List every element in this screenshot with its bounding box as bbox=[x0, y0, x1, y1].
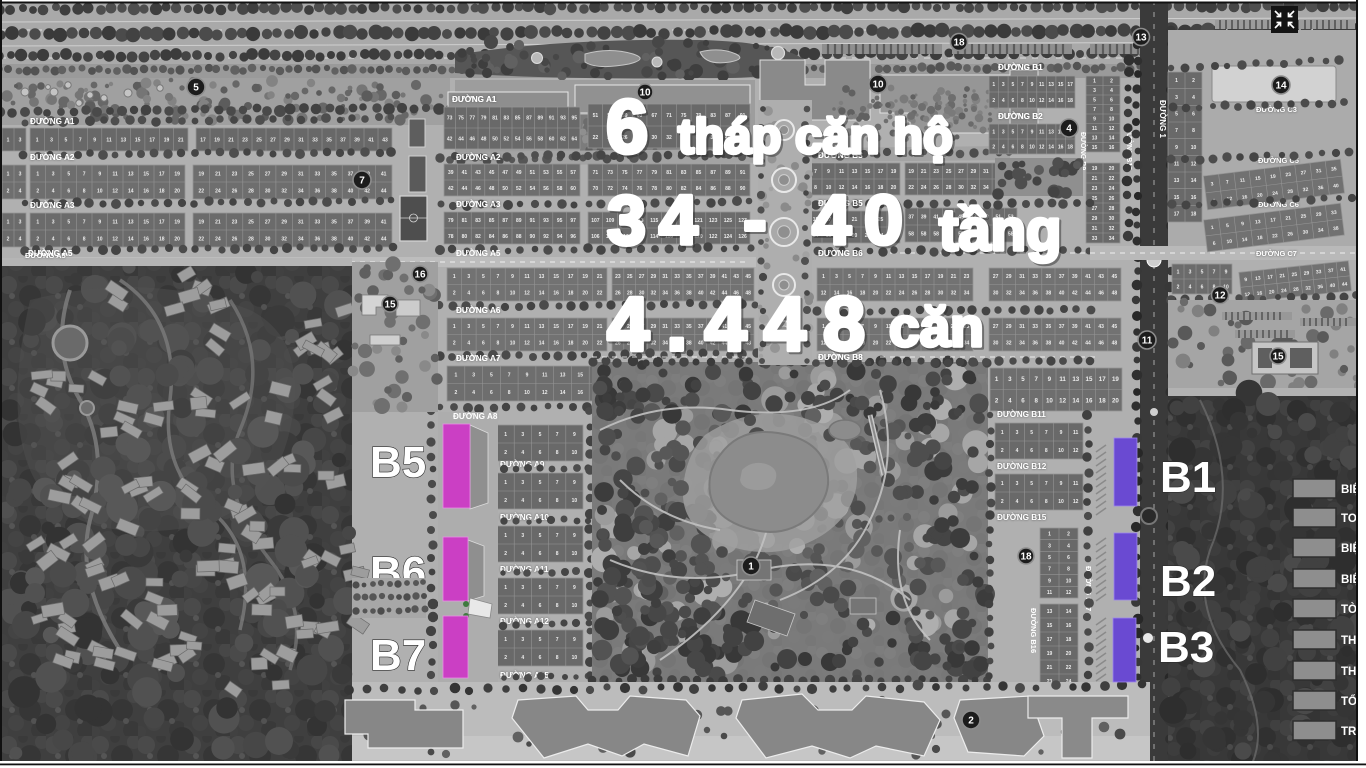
svg-text:30: 30 bbox=[993, 341, 999, 347]
svg-text:2: 2 bbox=[504, 551, 507, 557]
svg-text:10: 10 bbox=[872, 79, 884, 90]
svg-text:17: 17 bbox=[149, 137, 155, 143]
svg-text:20: 20 bbox=[582, 291, 588, 297]
svg-text:17: 17 bbox=[1174, 212, 1180, 218]
svg-text:91: 91 bbox=[740, 170, 746, 176]
svg-text:34: 34 bbox=[1019, 341, 1025, 347]
svg-text:14: 14 bbox=[128, 188, 134, 194]
svg-text:83: 83 bbox=[504, 115, 510, 121]
svg-text:41: 41 bbox=[1085, 274, 1091, 280]
svg-text:28: 28 bbox=[1109, 206, 1115, 212]
svg-text:7: 7 bbox=[83, 171, 86, 177]
svg-text:9: 9 bbox=[93, 137, 96, 143]
svg-text:9: 9 bbox=[511, 324, 514, 330]
svg-text:28: 28 bbox=[946, 185, 952, 191]
svg-text:33: 33 bbox=[674, 274, 680, 280]
svg-text:46: 46 bbox=[470, 136, 476, 142]
svg-text:20: 20 bbox=[1112, 398, 1119, 405]
svg-text:1: 1 bbox=[7, 137, 10, 143]
svg-text:19: 19 bbox=[1270, 174, 1276, 181]
svg-text:3: 3 bbox=[19, 219, 22, 225]
svg-text:43: 43 bbox=[382, 137, 388, 143]
svg-text:10: 10 bbox=[572, 551, 578, 557]
svg-text:107: 107 bbox=[591, 218, 600, 224]
svg-text:7: 7 bbox=[556, 432, 559, 438]
svg-text:11: 11 bbox=[1174, 162, 1180, 168]
svg-text:15: 15 bbox=[1058, 82, 1064, 88]
svg-text:ĐƯỜNG A8: ĐƯỜNG A8 bbox=[453, 410, 498, 421]
svg-text:16: 16 bbox=[578, 390, 584, 396]
svg-text:7: 7 bbox=[83, 219, 86, 225]
svg-text:29: 29 bbox=[1092, 216, 1098, 222]
svg-text:7: 7 bbox=[556, 585, 559, 591]
svg-text:2: 2 bbox=[504, 655, 507, 661]
svg-text:20: 20 bbox=[174, 236, 180, 242]
svg-text:34: 34 bbox=[1318, 227, 1324, 234]
svg-text:75: 75 bbox=[622, 170, 628, 176]
svg-text:22: 22 bbox=[1109, 176, 1115, 182]
svg-text:17: 17 bbox=[925, 274, 931, 280]
svg-text:9: 9 bbox=[1031, 82, 1034, 88]
svg-text:41: 41 bbox=[462, 170, 468, 176]
svg-text:7: 7 bbox=[556, 637, 559, 643]
svg-text:11: 11 bbox=[542, 373, 548, 379]
svg-text:8: 8 bbox=[556, 450, 559, 456]
svg-text:4: 4 bbox=[1016, 448, 1019, 454]
svg-text:93: 93 bbox=[543, 218, 549, 224]
svg-text:31: 31 bbox=[298, 137, 304, 143]
svg-text:13: 13 bbox=[899, 274, 905, 280]
svg-text:1: 1 bbox=[1048, 532, 1051, 538]
svg-text:11: 11 bbox=[524, 324, 530, 330]
svg-text:77: 77 bbox=[470, 115, 476, 121]
svg-text:2: 2 bbox=[453, 291, 456, 297]
svg-text:25: 25 bbox=[248, 171, 254, 177]
svg-text:37: 37 bbox=[1059, 274, 1065, 280]
svg-text:5: 5 bbox=[539, 533, 542, 539]
svg-text:1: 1 bbox=[822, 274, 825, 280]
svg-text:3: 3 bbox=[1002, 82, 1005, 88]
svg-text:37: 37 bbox=[1328, 268, 1334, 275]
svg-text:9: 9 bbox=[1060, 430, 1063, 436]
svg-text:58: 58 bbox=[921, 231, 927, 237]
svg-text:28: 28 bbox=[1287, 189, 1293, 196]
svg-text:21: 21 bbox=[921, 169, 927, 175]
svg-text:36: 36 bbox=[1032, 291, 1038, 297]
svg-text:44: 44 bbox=[381, 236, 387, 242]
svg-text:10: 10 bbox=[572, 655, 578, 661]
svg-text:5: 5 bbox=[1012, 129, 1015, 135]
svg-text:4: 4 bbox=[1110, 88, 1113, 94]
svg-text:2: 2 bbox=[453, 341, 456, 347]
svg-text:21: 21 bbox=[951, 274, 957, 280]
svg-text:20: 20 bbox=[1257, 192, 1263, 199]
svg-text:33: 33 bbox=[1331, 210, 1337, 217]
svg-text:41: 41 bbox=[368, 137, 374, 143]
svg-text:1: 1 bbox=[7, 219, 10, 225]
svg-text:86: 86 bbox=[502, 234, 508, 240]
svg-text:ĐƯỜNG A1: ĐƯỜNG A1 bbox=[30, 115, 75, 126]
svg-text:54: 54 bbox=[530, 186, 536, 192]
svg-text:31: 31 bbox=[983, 169, 989, 175]
svg-text:10: 10 bbox=[572, 450, 578, 456]
svg-text:3: 3 bbox=[1002, 129, 1005, 135]
svg-text:6: 6 bbox=[539, 450, 542, 456]
svg-text:15: 15 bbox=[1255, 175, 1261, 182]
svg-text:32: 32 bbox=[666, 135, 672, 141]
svg-text:4: 4 bbox=[1002, 144, 1005, 150]
svg-text:4: 4 bbox=[52, 236, 55, 242]
svg-text:25: 25 bbox=[627, 274, 633, 280]
svg-text:ĐƯỜNG A2: ĐƯỜNG A2 bbox=[30, 151, 75, 162]
svg-text:44: 44 bbox=[1085, 291, 1091, 297]
svg-text:29: 29 bbox=[284, 137, 290, 143]
svg-text:48: 48 bbox=[481, 136, 487, 142]
svg-text:4: 4 bbox=[52, 188, 55, 194]
svg-text:1: 1 bbox=[1177, 269, 1180, 275]
svg-text:18: 18 bbox=[1020, 551, 1032, 562]
svg-text:9: 9 bbox=[573, 533, 576, 539]
svg-text:10: 10 bbox=[1058, 448, 1064, 454]
svg-text:16: 16 bbox=[414, 269, 426, 280]
svg-text:5: 5 bbox=[539, 637, 542, 643]
svg-text:32: 32 bbox=[1109, 226, 1115, 232]
svg-text:18: 18 bbox=[159, 188, 165, 194]
svg-text:37: 37 bbox=[1059, 324, 1065, 330]
svg-text:29: 29 bbox=[1316, 212, 1322, 219]
svg-text:31: 31 bbox=[1019, 274, 1025, 280]
svg-text:58: 58 bbox=[538, 136, 544, 142]
svg-text:14: 14 bbox=[560, 390, 566, 396]
svg-text:15: 15 bbox=[384, 299, 396, 310]
svg-text:2: 2 bbox=[36, 188, 39, 194]
svg-text:30: 30 bbox=[1302, 229, 1308, 236]
svg-text:25: 25 bbox=[256, 137, 262, 143]
svg-text:38: 38 bbox=[1046, 291, 1052, 297]
svg-text:32: 32 bbox=[1302, 187, 1308, 194]
svg-text:51: 51 bbox=[593, 113, 599, 119]
svg-text:6: 6 bbox=[67, 188, 70, 194]
svg-text:19: 19 bbox=[199, 219, 205, 225]
svg-text:3: 3 bbox=[52, 219, 55, 225]
svg-text:95: 95 bbox=[557, 218, 563, 224]
svg-text:12: 12 bbox=[1073, 448, 1079, 454]
svg-text:77: 77 bbox=[637, 170, 643, 176]
svg-text:12: 12 bbox=[1059, 398, 1066, 405]
svg-text:41: 41 bbox=[381, 219, 387, 225]
svg-text:5: 5 bbox=[490, 373, 493, 379]
svg-text:60: 60 bbox=[549, 136, 555, 142]
svg-text:11: 11 bbox=[1073, 430, 1079, 436]
svg-text:27: 27 bbox=[993, 274, 999, 280]
svg-text:7: 7 bbox=[497, 324, 500, 330]
svg-text:17: 17 bbox=[1267, 274, 1273, 281]
svg-text:16: 16 bbox=[1066, 623, 1072, 629]
svg-text:16: 16 bbox=[1242, 194, 1248, 201]
svg-text:17: 17 bbox=[568, 324, 574, 330]
svg-text:39: 39 bbox=[354, 137, 360, 143]
svg-text:17: 17 bbox=[1270, 217, 1276, 224]
svg-text:15: 15 bbox=[1092, 145, 1098, 151]
svg-text:52: 52 bbox=[516, 186, 522, 192]
svg-text:1: 1 bbox=[453, 274, 456, 280]
svg-text:7: 7 bbox=[79, 137, 82, 143]
svg-text:31: 31 bbox=[1092, 226, 1098, 232]
svg-text:27: 27 bbox=[265, 171, 271, 177]
svg-text:29: 29 bbox=[281, 171, 287, 177]
svg-text:1: 1 bbox=[455, 373, 458, 379]
svg-text:ĐƯỜNG C6: ĐƯỜNG C6 bbox=[1258, 200, 1299, 209]
svg-text:22: 22 bbox=[597, 291, 603, 297]
svg-text:40: 40 bbox=[1059, 341, 1065, 347]
svg-text:13: 13 bbox=[1174, 178, 1180, 184]
svg-text:34: 34 bbox=[298, 188, 304, 194]
svg-text:15: 15 bbox=[135, 137, 141, 143]
svg-text:25: 25 bbox=[946, 169, 952, 175]
svg-text:11: 11 bbox=[839, 169, 845, 175]
svg-text:5: 5 bbox=[1012, 82, 1015, 88]
svg-text:88: 88 bbox=[516, 234, 522, 240]
svg-text:5: 5 bbox=[193, 82, 199, 93]
svg-text:29: 29 bbox=[971, 169, 977, 175]
svg-text:16: 16 bbox=[1109, 145, 1115, 151]
svg-text:24: 24 bbox=[1109, 186, 1115, 192]
svg-text:4: 4 bbox=[1066, 123, 1072, 134]
svg-text:23: 23 bbox=[615, 274, 621, 280]
svg-text:7: 7 bbox=[497, 274, 500, 280]
svg-text:2: 2 bbox=[1110, 79, 1113, 85]
svg-text:8: 8 bbox=[556, 655, 559, 661]
svg-text:2: 2 bbox=[1177, 284, 1180, 290]
svg-text:12: 12 bbox=[112, 188, 118, 194]
svg-text:12: 12 bbox=[1073, 499, 1079, 505]
svg-text:2: 2 bbox=[995, 398, 999, 405]
svg-text:14: 14 bbox=[1066, 609, 1072, 615]
svg-text:6: 6 bbox=[1030, 499, 1033, 505]
svg-text:36: 36 bbox=[1318, 185, 1324, 192]
svg-text:17: 17 bbox=[1099, 376, 1106, 383]
svg-text:80: 80 bbox=[462, 234, 468, 240]
svg-text:8: 8 bbox=[556, 551, 559, 557]
svg-text:11: 11 bbox=[106, 137, 112, 143]
svg-text:6: 6 bbox=[606, 85, 648, 170]
svg-text:2: 2 bbox=[504, 603, 507, 609]
svg-text:1: 1 bbox=[1093, 79, 1096, 85]
svg-text:4: 4 bbox=[1192, 95, 1195, 101]
svg-text:18: 18 bbox=[1067, 144, 1073, 150]
svg-text:13: 13 bbox=[539, 274, 545, 280]
svg-text:3: 3 bbox=[50, 137, 53, 143]
svg-text:B7: B7 bbox=[370, 631, 426, 680]
svg-text:40: 40 bbox=[1059, 291, 1065, 297]
svg-text:căn: căn bbox=[889, 296, 984, 358]
svg-text:1: 1 bbox=[1001, 430, 1004, 436]
svg-text:31: 31 bbox=[1019, 324, 1025, 330]
svg-text:19: 19 bbox=[582, 274, 588, 280]
svg-text:56: 56 bbox=[543, 186, 549, 192]
svg-text:7: 7 bbox=[508, 373, 511, 379]
svg-text:40: 40 bbox=[1333, 183, 1339, 190]
svg-text:18: 18 bbox=[568, 291, 574, 297]
svg-text:35: 35 bbox=[331, 219, 337, 225]
svg-text:3: 3 bbox=[467, 274, 470, 280]
svg-text:9: 9 bbox=[874, 274, 877, 280]
svg-text:18: 18 bbox=[1067, 98, 1073, 104]
svg-text:45: 45 bbox=[1112, 274, 1118, 280]
svg-text:11: 11 bbox=[524, 274, 530, 280]
svg-text:3: 3 bbox=[1189, 269, 1192, 275]
svg-text:22: 22 bbox=[1272, 233, 1278, 240]
svg-text:19: 19 bbox=[174, 219, 180, 225]
svg-text:32: 32 bbox=[281, 236, 287, 242]
svg-text:90: 90 bbox=[530, 234, 536, 240]
svg-text:38: 38 bbox=[1333, 226, 1339, 233]
svg-text:73: 73 bbox=[607, 170, 613, 176]
svg-text:44: 44 bbox=[462, 186, 468, 192]
svg-text:6: 6 bbox=[1030, 448, 1033, 454]
svg-text:45: 45 bbox=[489, 170, 495, 176]
svg-text:18: 18 bbox=[1099, 398, 1106, 405]
svg-text:15: 15 bbox=[1086, 376, 1093, 383]
svg-text:21: 21 bbox=[1047, 665, 1053, 671]
svg-text:5: 5 bbox=[1048, 555, 1051, 561]
svg-text:39: 39 bbox=[1072, 274, 1078, 280]
svg-text:22: 22 bbox=[593, 135, 599, 141]
svg-text:67: 67 bbox=[652, 113, 658, 119]
svg-text:4: 4 bbox=[521, 603, 524, 609]
svg-text:42: 42 bbox=[1072, 341, 1078, 347]
svg-text:5: 5 bbox=[1175, 112, 1178, 118]
svg-text:44: 44 bbox=[1085, 341, 1091, 347]
svg-text:35: 35 bbox=[331, 171, 337, 177]
svg-text:19: 19 bbox=[891, 169, 897, 175]
svg-text:43: 43 bbox=[733, 274, 739, 280]
svg-text:9: 9 bbox=[1060, 481, 1063, 487]
svg-text:16: 16 bbox=[1191, 195, 1197, 201]
svg-text:21: 21 bbox=[597, 274, 603, 280]
svg-text:9: 9 bbox=[511, 274, 514, 280]
svg-text:3: 3 bbox=[467, 324, 470, 330]
svg-text:37: 37 bbox=[348, 219, 354, 225]
svg-text:7: 7 bbox=[814, 169, 817, 175]
svg-text:12: 12 bbox=[1191, 162, 1197, 168]
svg-text:4.448: 4.448 bbox=[607, 282, 882, 367]
svg-text:19: 19 bbox=[1047, 651, 1053, 657]
svg-text:15: 15 bbox=[143, 219, 149, 225]
svg-text:33: 33 bbox=[315, 219, 321, 225]
svg-text:6: 6 bbox=[539, 551, 542, 557]
svg-text:7: 7 bbox=[1021, 82, 1024, 88]
svg-text:11: 11 bbox=[1092, 126, 1098, 132]
svg-text:23: 23 bbox=[232, 219, 238, 225]
svg-text:20: 20 bbox=[1269, 289, 1275, 296]
svg-text:17: 17 bbox=[1067, 82, 1073, 88]
svg-text:1: 1 bbox=[1001, 481, 1004, 487]
svg-text:12: 12 bbox=[542, 390, 548, 396]
svg-text:3: 3 bbox=[521, 533, 524, 539]
svg-text:21: 21 bbox=[1285, 215, 1291, 222]
svg-text:9: 9 bbox=[827, 169, 830, 175]
svg-text:47: 47 bbox=[502, 170, 508, 176]
svg-text:21: 21 bbox=[1092, 176, 1098, 182]
svg-text:17: 17 bbox=[159, 171, 165, 177]
svg-text:8: 8 bbox=[1067, 567, 1070, 573]
svg-text:3: 3 bbox=[521, 637, 524, 643]
svg-text:7: 7 bbox=[1175, 128, 1178, 134]
svg-text:13: 13 bbox=[128, 171, 134, 177]
svg-text:7: 7 bbox=[1048, 567, 1051, 573]
svg-text:19: 19 bbox=[199, 171, 205, 177]
svg-text:20: 20 bbox=[174, 188, 180, 194]
svg-text:11: 11 bbox=[886, 274, 892, 280]
svg-text:2: 2 bbox=[7, 236, 10, 242]
svg-text:26: 26 bbox=[232, 188, 238, 194]
svg-text:3: 3 bbox=[835, 274, 838, 280]
svg-text:4: 4 bbox=[521, 655, 524, 661]
svg-text:1: 1 bbox=[36, 137, 39, 143]
svg-text:4: 4 bbox=[1016, 499, 1019, 505]
svg-text:11: 11 bbox=[1047, 590, 1053, 596]
svg-text:16: 16 bbox=[1058, 98, 1064, 104]
svg-text:11: 11 bbox=[113, 219, 119, 225]
svg-text:B1: B1 bbox=[1160, 453, 1216, 502]
svg-text:8: 8 bbox=[83, 236, 86, 242]
svg-text:30: 30 bbox=[652, 135, 658, 141]
svg-text:7: 7 bbox=[359, 175, 365, 186]
svg-text:10: 10 bbox=[1029, 144, 1035, 150]
svg-text:16: 16 bbox=[143, 188, 149, 194]
svg-text:96: 96 bbox=[570, 234, 576, 240]
svg-text:73: 73 bbox=[447, 115, 453, 121]
svg-text:14: 14 bbox=[1191, 178, 1197, 184]
svg-text:29: 29 bbox=[651, 274, 657, 280]
svg-text:38: 38 bbox=[331, 188, 337, 194]
svg-text:45: 45 bbox=[745, 274, 751, 280]
svg-text:5: 5 bbox=[1093, 98, 1096, 104]
svg-text:83: 83 bbox=[681, 170, 687, 176]
svg-text:4: 4 bbox=[19, 236, 22, 242]
svg-text:8: 8 bbox=[508, 390, 511, 396]
svg-text:23: 23 bbox=[1285, 172, 1291, 179]
svg-text:14: 14 bbox=[1241, 237, 1247, 244]
svg-text:10: 10 bbox=[524, 390, 530, 396]
svg-text:33: 33 bbox=[312, 137, 318, 143]
svg-text:B3: B3 bbox=[1158, 623, 1214, 672]
svg-text:85: 85 bbox=[696, 170, 702, 176]
svg-text:39: 39 bbox=[921, 214, 927, 220]
svg-text:41: 41 bbox=[381, 171, 387, 177]
svg-text:9: 9 bbox=[526, 373, 529, 379]
svg-text:11: 11 bbox=[113, 171, 119, 177]
svg-text:81: 81 bbox=[462, 218, 468, 224]
svg-text:52: 52 bbox=[504, 136, 510, 142]
svg-text:3: 3 bbox=[52, 171, 55, 177]
svg-text:8: 8 bbox=[1021, 144, 1024, 150]
svg-text:53: 53 bbox=[543, 170, 549, 176]
svg-text:13: 13 bbox=[1048, 82, 1054, 88]
svg-text:44: 44 bbox=[1342, 281, 1348, 288]
svg-text:3: 3 bbox=[1175, 95, 1178, 101]
svg-text:18: 18 bbox=[1066, 637, 1072, 643]
svg-text:ĐƯỜNG A5: ĐƯỜNG A5 bbox=[28, 247, 73, 258]
svg-text:20: 20 bbox=[582, 341, 588, 347]
svg-text:23: 23 bbox=[1092, 186, 1098, 192]
svg-text:10: 10 bbox=[1046, 398, 1053, 405]
svg-text:48: 48 bbox=[1112, 341, 1118, 347]
svg-text:18: 18 bbox=[1191, 212, 1197, 218]
svg-text:29: 29 bbox=[1006, 324, 1012, 330]
svg-text:79: 79 bbox=[652, 170, 658, 176]
